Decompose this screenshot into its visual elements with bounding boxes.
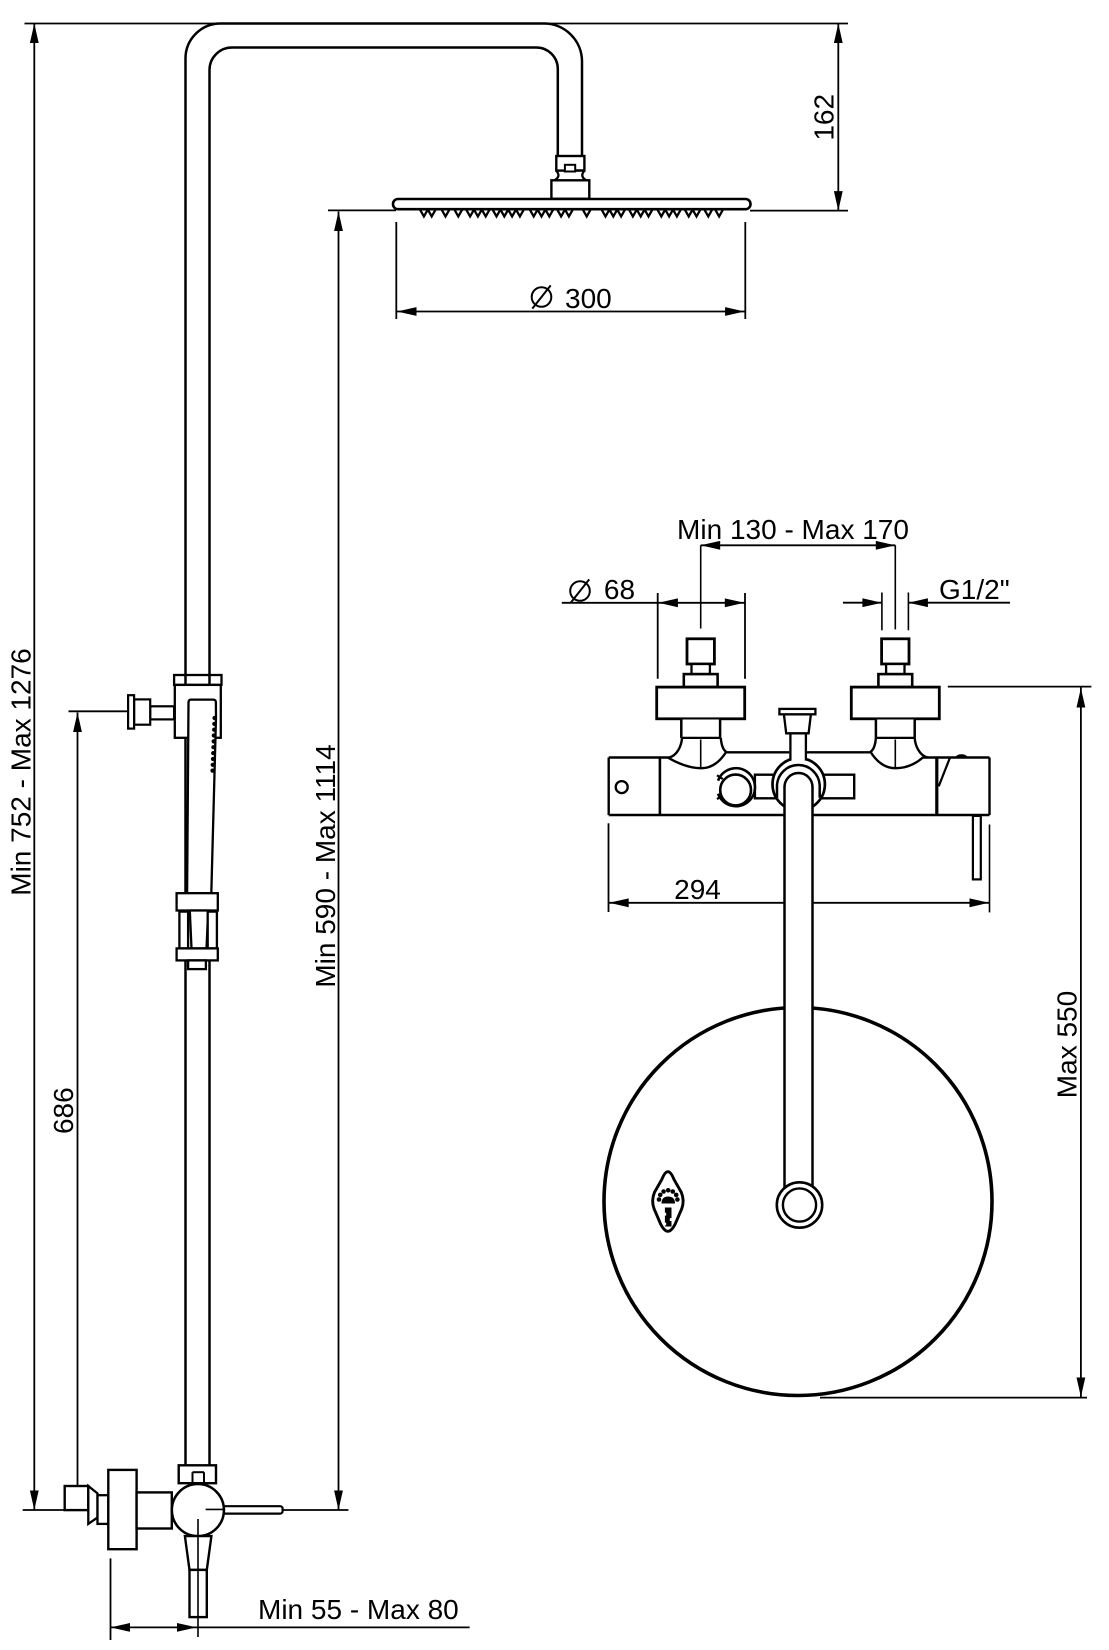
svg-text:Min 590 - Max 1114: Min 590 - Max 1114 bbox=[310, 744, 341, 987]
svg-text:294: 294 bbox=[674, 874, 721, 905]
svg-text:Min 752 - Max 1276: Min 752 - Max 1276 bbox=[6, 648, 37, 895]
svg-text:686: 686 bbox=[48, 1087, 79, 1134]
svg-text:Min 130 - Max 170: Min 130 - Max 170 bbox=[677, 514, 909, 545]
svg-text:Max 550: Max 550 bbox=[1052, 991, 1083, 1098]
svg-text:G1/2": G1/2" bbox=[939, 574, 1010, 605]
svg-text:Min 55 - Max 80: Min 55 - Max 80 bbox=[258, 1594, 459, 1625]
svg-text:68: 68 bbox=[604, 574, 635, 605]
svg-text:300: 300 bbox=[565, 283, 612, 314]
svg-text:162: 162 bbox=[809, 94, 840, 141]
